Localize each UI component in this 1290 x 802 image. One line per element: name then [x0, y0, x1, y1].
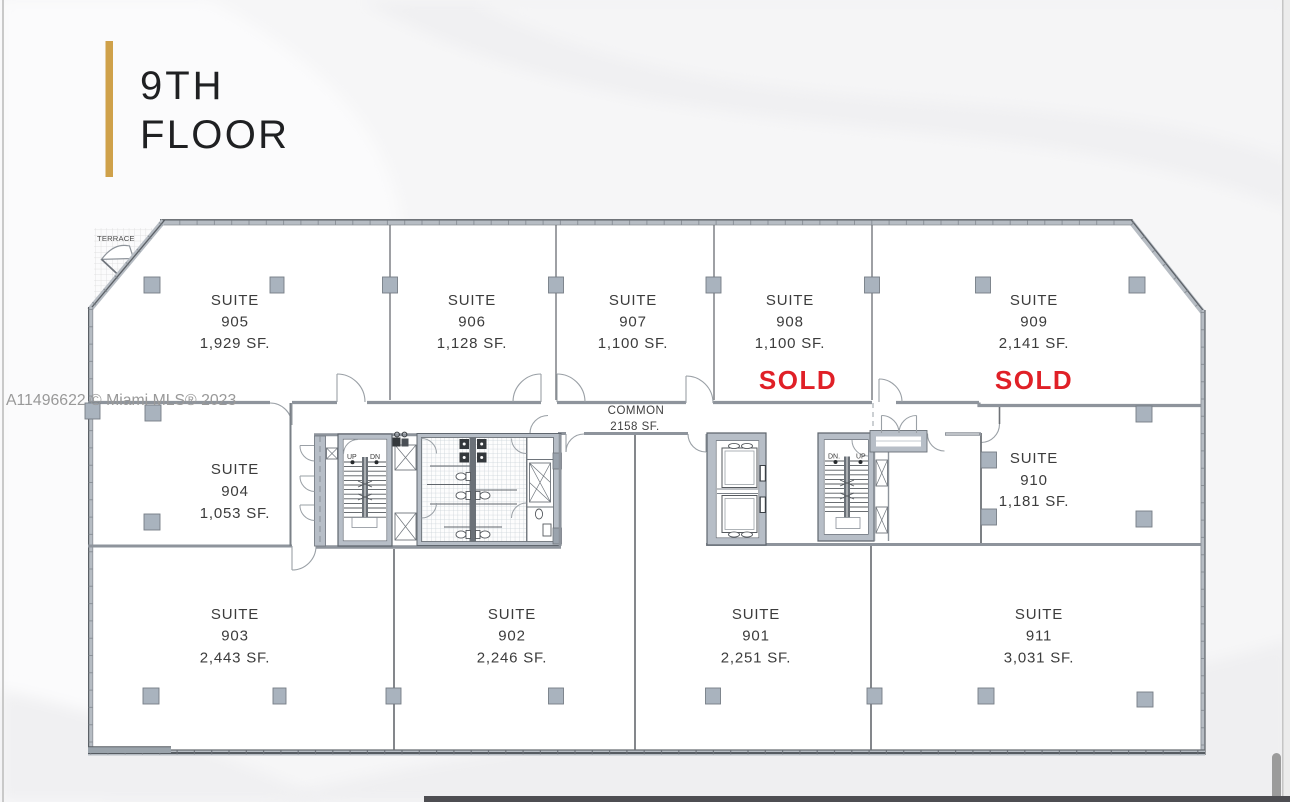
- svg-text:9TH: 9TH: [140, 64, 225, 108]
- svg-text:FLOOR: FLOOR: [140, 113, 289, 157]
- svg-text:910: 910: [1020, 472, 1047, 489]
- svg-text:1,100 SF.: 1,100 SF.: [755, 335, 826, 352]
- svg-text:2,246 SF.: 2,246 SF.: [477, 650, 548, 667]
- svg-text:SUITE: SUITE: [488, 606, 536, 623]
- svg-text:COMMON: COMMON: [608, 405, 665, 417]
- svg-text:UP: UP: [347, 454, 357, 461]
- svg-text:SUITE: SUITE: [766, 292, 814, 309]
- svg-text:DN: DN: [370, 454, 380, 461]
- svg-text:SUITE: SUITE: [1015, 606, 1063, 623]
- svg-text:SUITE: SUITE: [211, 461, 259, 478]
- svg-text:907: 907: [619, 314, 646, 331]
- svg-text:TERRACE: TERRACE: [97, 234, 135, 243]
- svg-text:2,141 SF.: 2,141 SF.: [999, 335, 1070, 352]
- svg-text:1,929 SF.: 1,929 SF.: [200, 335, 271, 352]
- svg-text:SUITE: SUITE: [609, 292, 657, 309]
- svg-text:1,053 SF.: 1,053 SF.: [200, 505, 271, 522]
- svg-text:1,181 SF.: 1,181 SF.: [999, 493, 1070, 510]
- svg-text:902: 902: [498, 628, 525, 645]
- svg-text:903: 903: [221, 628, 248, 645]
- svg-text:1,100 SF.: 1,100 SF.: [598, 335, 669, 352]
- svg-text:3,031 SF.: 3,031 SF.: [1004, 650, 1075, 667]
- svg-text:906: 906: [458, 314, 485, 331]
- svg-text:SOLD: SOLD: [759, 365, 837, 395]
- svg-text:SUITE: SUITE: [448, 292, 496, 309]
- svg-text:UP: UP: [856, 454, 866, 461]
- svg-text:2,443 SF.: 2,443 SF.: [200, 650, 271, 667]
- svg-text:DN.: DN.: [828, 454, 840, 461]
- svg-text:SOLD: SOLD: [995, 365, 1073, 395]
- svg-text:904: 904: [221, 483, 248, 500]
- svg-text:SUITE: SUITE: [732, 606, 780, 623]
- svg-text:2158 SF.: 2158 SF.: [610, 421, 659, 433]
- svg-text:901: 901: [742, 628, 769, 645]
- svg-text:SUITE: SUITE: [211, 606, 259, 623]
- svg-text:911: 911: [1026, 628, 1052, 645]
- svg-text:SUITE: SUITE: [1010, 450, 1058, 467]
- svg-text:SUITE: SUITE: [211, 292, 259, 309]
- svg-text:A11496622 © Miami MLS® 2023: A11496622 © Miami MLS® 2023: [6, 392, 236, 409]
- svg-text:908: 908: [776, 314, 803, 331]
- svg-text:SUITE: SUITE: [1010, 292, 1058, 309]
- svg-text:909: 909: [1020, 314, 1047, 331]
- svg-text:905: 905: [221, 314, 248, 331]
- svg-text:1,128 SF.: 1,128 SF.: [437, 335, 508, 352]
- svg-text:2,251 SF.: 2,251 SF.: [721, 650, 792, 667]
